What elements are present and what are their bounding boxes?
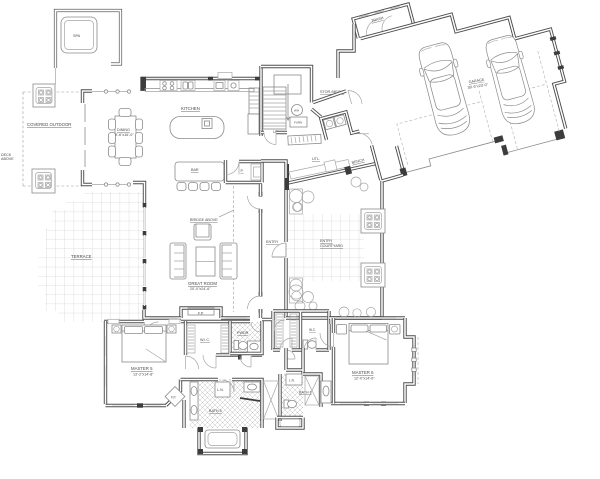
svg-text:MASTER 5: MASTER 5 — [131, 366, 153, 371]
svg-text:9'-6"x16'-0": 9'-6"x16'-0" — [115, 133, 134, 137]
svg-text:W.C.: W.C. — [309, 328, 316, 332]
svg-text:BATH 5: BATH 5 — [209, 409, 222, 413]
svg-text:PWDR: PWDR — [237, 331, 249, 335]
svg-text:WH: WH — [294, 109, 299, 113]
svg-text:12'-0"x14'-6": 12'-0"x14'-6" — [354, 377, 375, 381]
svg-text:F.P.: F.P. — [198, 312, 204, 316]
svg-text:L.N.: L.N. — [217, 388, 224, 392]
svg-text:UTL.: UTL. — [312, 157, 320, 161]
svg-text:FURN: FURN — [294, 121, 302, 125]
svg-text:MASTER 6: MASTER 6 — [352, 370, 374, 375]
svg-text:L.N.: L.N. — [289, 379, 295, 383]
svg-text:ENTRY: ENTRY — [266, 240, 279, 244]
svg-text:COURTYARD: COURTYARD — [320, 244, 343, 248]
svg-text:20'-0"x24'-6": 20'-0"x24'-6" — [190, 287, 211, 291]
svg-text:ENTRY: ENTRY — [320, 239, 333, 243]
svg-text:F.P.: F.P. — [171, 396, 176, 400]
svg-text:BAR: BAR — [191, 168, 199, 172]
svg-text:P.: P. — [241, 169, 244, 173]
svg-text:DINING: DINING — [117, 128, 130, 132]
svg-text:TERRACE: TERRACE — [71, 254, 92, 259]
svg-text:W.I.C.: W.I.C. — [200, 338, 210, 342]
svg-text:BRIDGE ABOVE: BRIDGE ABOVE — [190, 218, 218, 222]
svg-text:SPA: SPA — [73, 34, 81, 38]
svg-text:13'-2"x14'-8": 13'-2"x14'-8" — [133, 373, 154, 377]
svg-text:COVERED OUTDOOR: COVERED OUTDOOR — [27, 122, 71, 127]
svg-text:ABOVE: ABOVE — [1, 157, 14, 161]
svg-text:KITCHEN: KITCHEN — [181, 106, 200, 111]
svg-text:GREAT ROOM: GREAT ROOM — [188, 281, 217, 286]
